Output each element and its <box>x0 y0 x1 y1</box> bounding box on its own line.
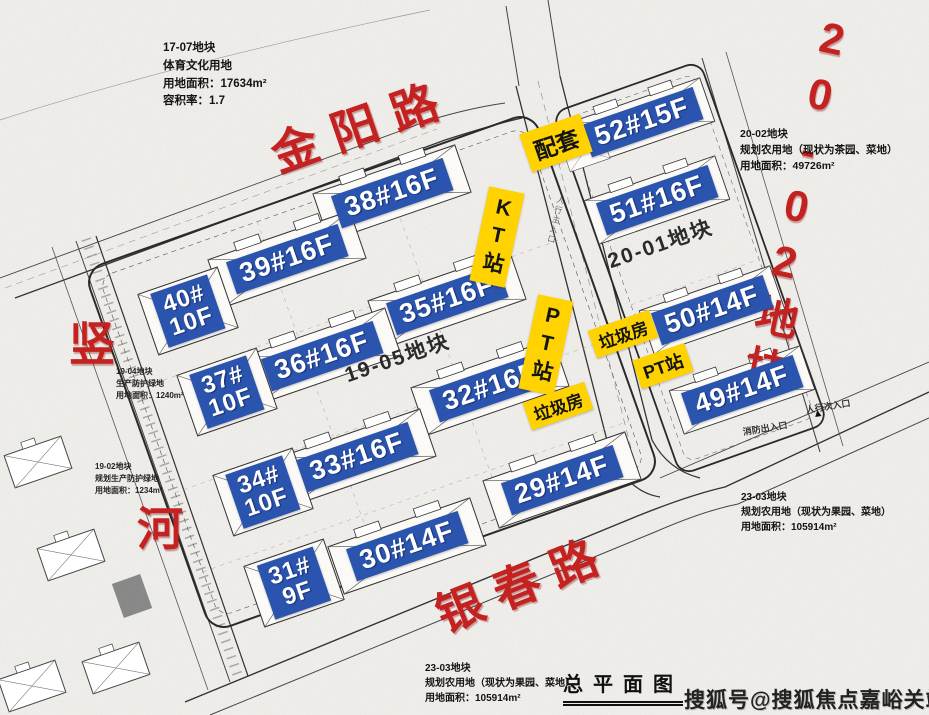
note-plot-2303-bottom: 23-03地块 规划农用地（现状为果园、菜地） 用地面积：105914m² <box>425 661 575 706</box>
river-name-he: 河 <box>137 493 183 559</box>
watermark: 搜狐号@搜狐焦点嘉峪关站 <box>684 684 929 714</box>
note-plot-1904: 19-04地块 生产防护绿地 用地面积：1240m² <box>116 366 184 402</box>
note-plot-1707: 17-07地块 体育文化用地 用地面积：17634m² 容积率：1.7 <box>163 40 267 111</box>
note-plot-1902: 19-02地块 规划生产防护绿地 用地面积：1234m² <box>95 461 163 497</box>
note-plot-2303-right: 23-03地块 规划农用地（现状为果园、菜地） 用地面积：105914m² <box>741 490 891 535</box>
entrance-triangle-icon: ▲ <box>812 408 824 421</box>
site-plan-page: 金阳路 银春路 竖 河 20-02地块 19-05地块 20-01地块 38#1… <box>0 0 929 715</box>
page-title: 总平面图 <box>563 668 683 706</box>
river-name-shu: 竖 <box>69 308 115 374</box>
note-plot-2002: 20-02地块 规划农用地（现状为茶园、菜地） 用地面积：49726m² <box>740 127 898 174</box>
